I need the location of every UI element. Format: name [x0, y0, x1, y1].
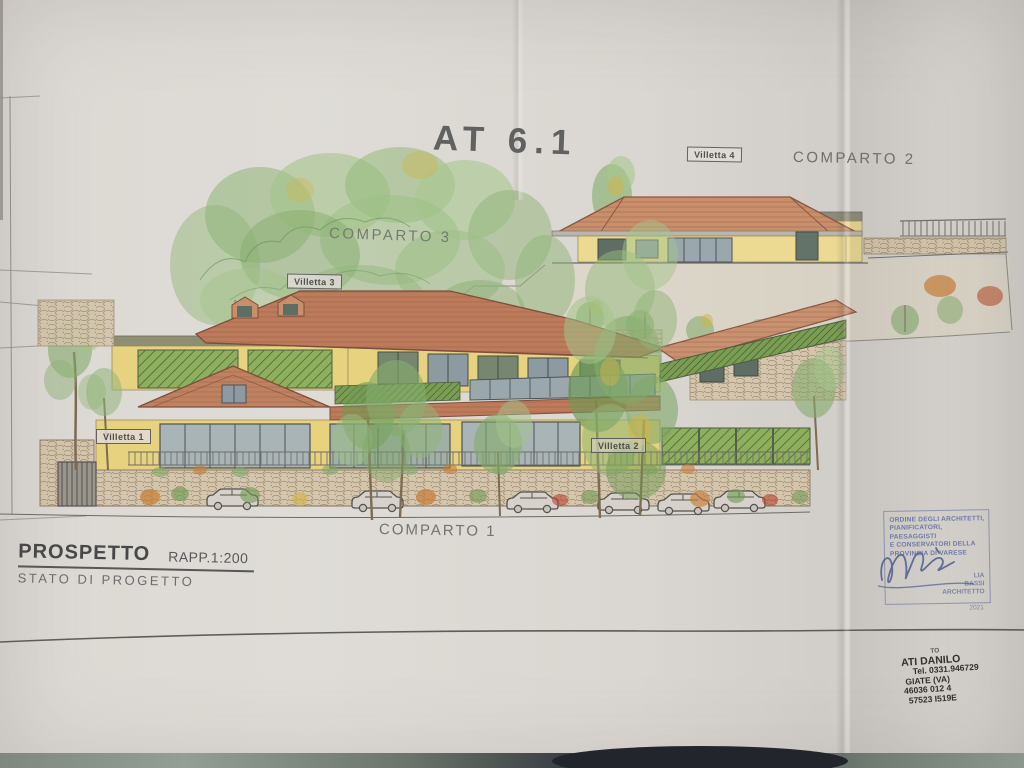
- stamp-line: PIANIFICATORI, PAESAGGISTI: [884, 524, 988, 543]
- photo-of-architectural-drawing: AT 6.1 COMPARTO 2 COMPARTO 3 COMPARTO 1 …: [0, 0, 1024, 768]
- villetta-3-tag: Villetta 3: [287, 274, 342, 290]
- comparto-2-label: COMPARTO 2: [793, 149, 916, 168]
- drawing-type-label: PROSPETTO: [18, 540, 150, 566]
- architect-name: LIA BASSI ARCHITETTO: [942, 572, 985, 597]
- architect-order-stamp: ORDINE DEGLI ARCHITETTI, PIANIFICATORI, …: [883, 509, 991, 605]
- villetta-1-tag: Villetta 1: [96, 429, 151, 444]
- surveyor-stamp: TO ATI DANILO Tel. 0331.946729 GIATE (VA…: [894, 641, 1024, 707]
- stamp-line: ORDINE DEGLI ARCHITETTI,: [884, 510, 988, 525]
- comparto-1-label: COMPARTO 1: [379, 521, 497, 540]
- table-shadow: [552, 746, 848, 768]
- villetta-2-tag: Villetta 2: [591, 438, 646, 453]
- stamp-number: 2021: [969, 604, 984, 611]
- stamp-line: PROVINCIA DI VARESE: [885, 549, 989, 559]
- scale-label: RAPP.1:200: [168, 549, 249, 567]
- drawing-title: AT 6.1: [432, 118, 578, 163]
- title-block: PROSPETTO RAPP.1:200 STATO DI PROGETTO: [18, 540, 269, 590]
- photo-vignette: [0, 0, 1024, 768]
- villetta-4-tag: Villetta 4: [687, 147, 742, 163]
- table-surface: [0, 753, 1024, 768]
- title-block-row: PROSPETTO RAPP.1:200: [18, 540, 268, 567]
